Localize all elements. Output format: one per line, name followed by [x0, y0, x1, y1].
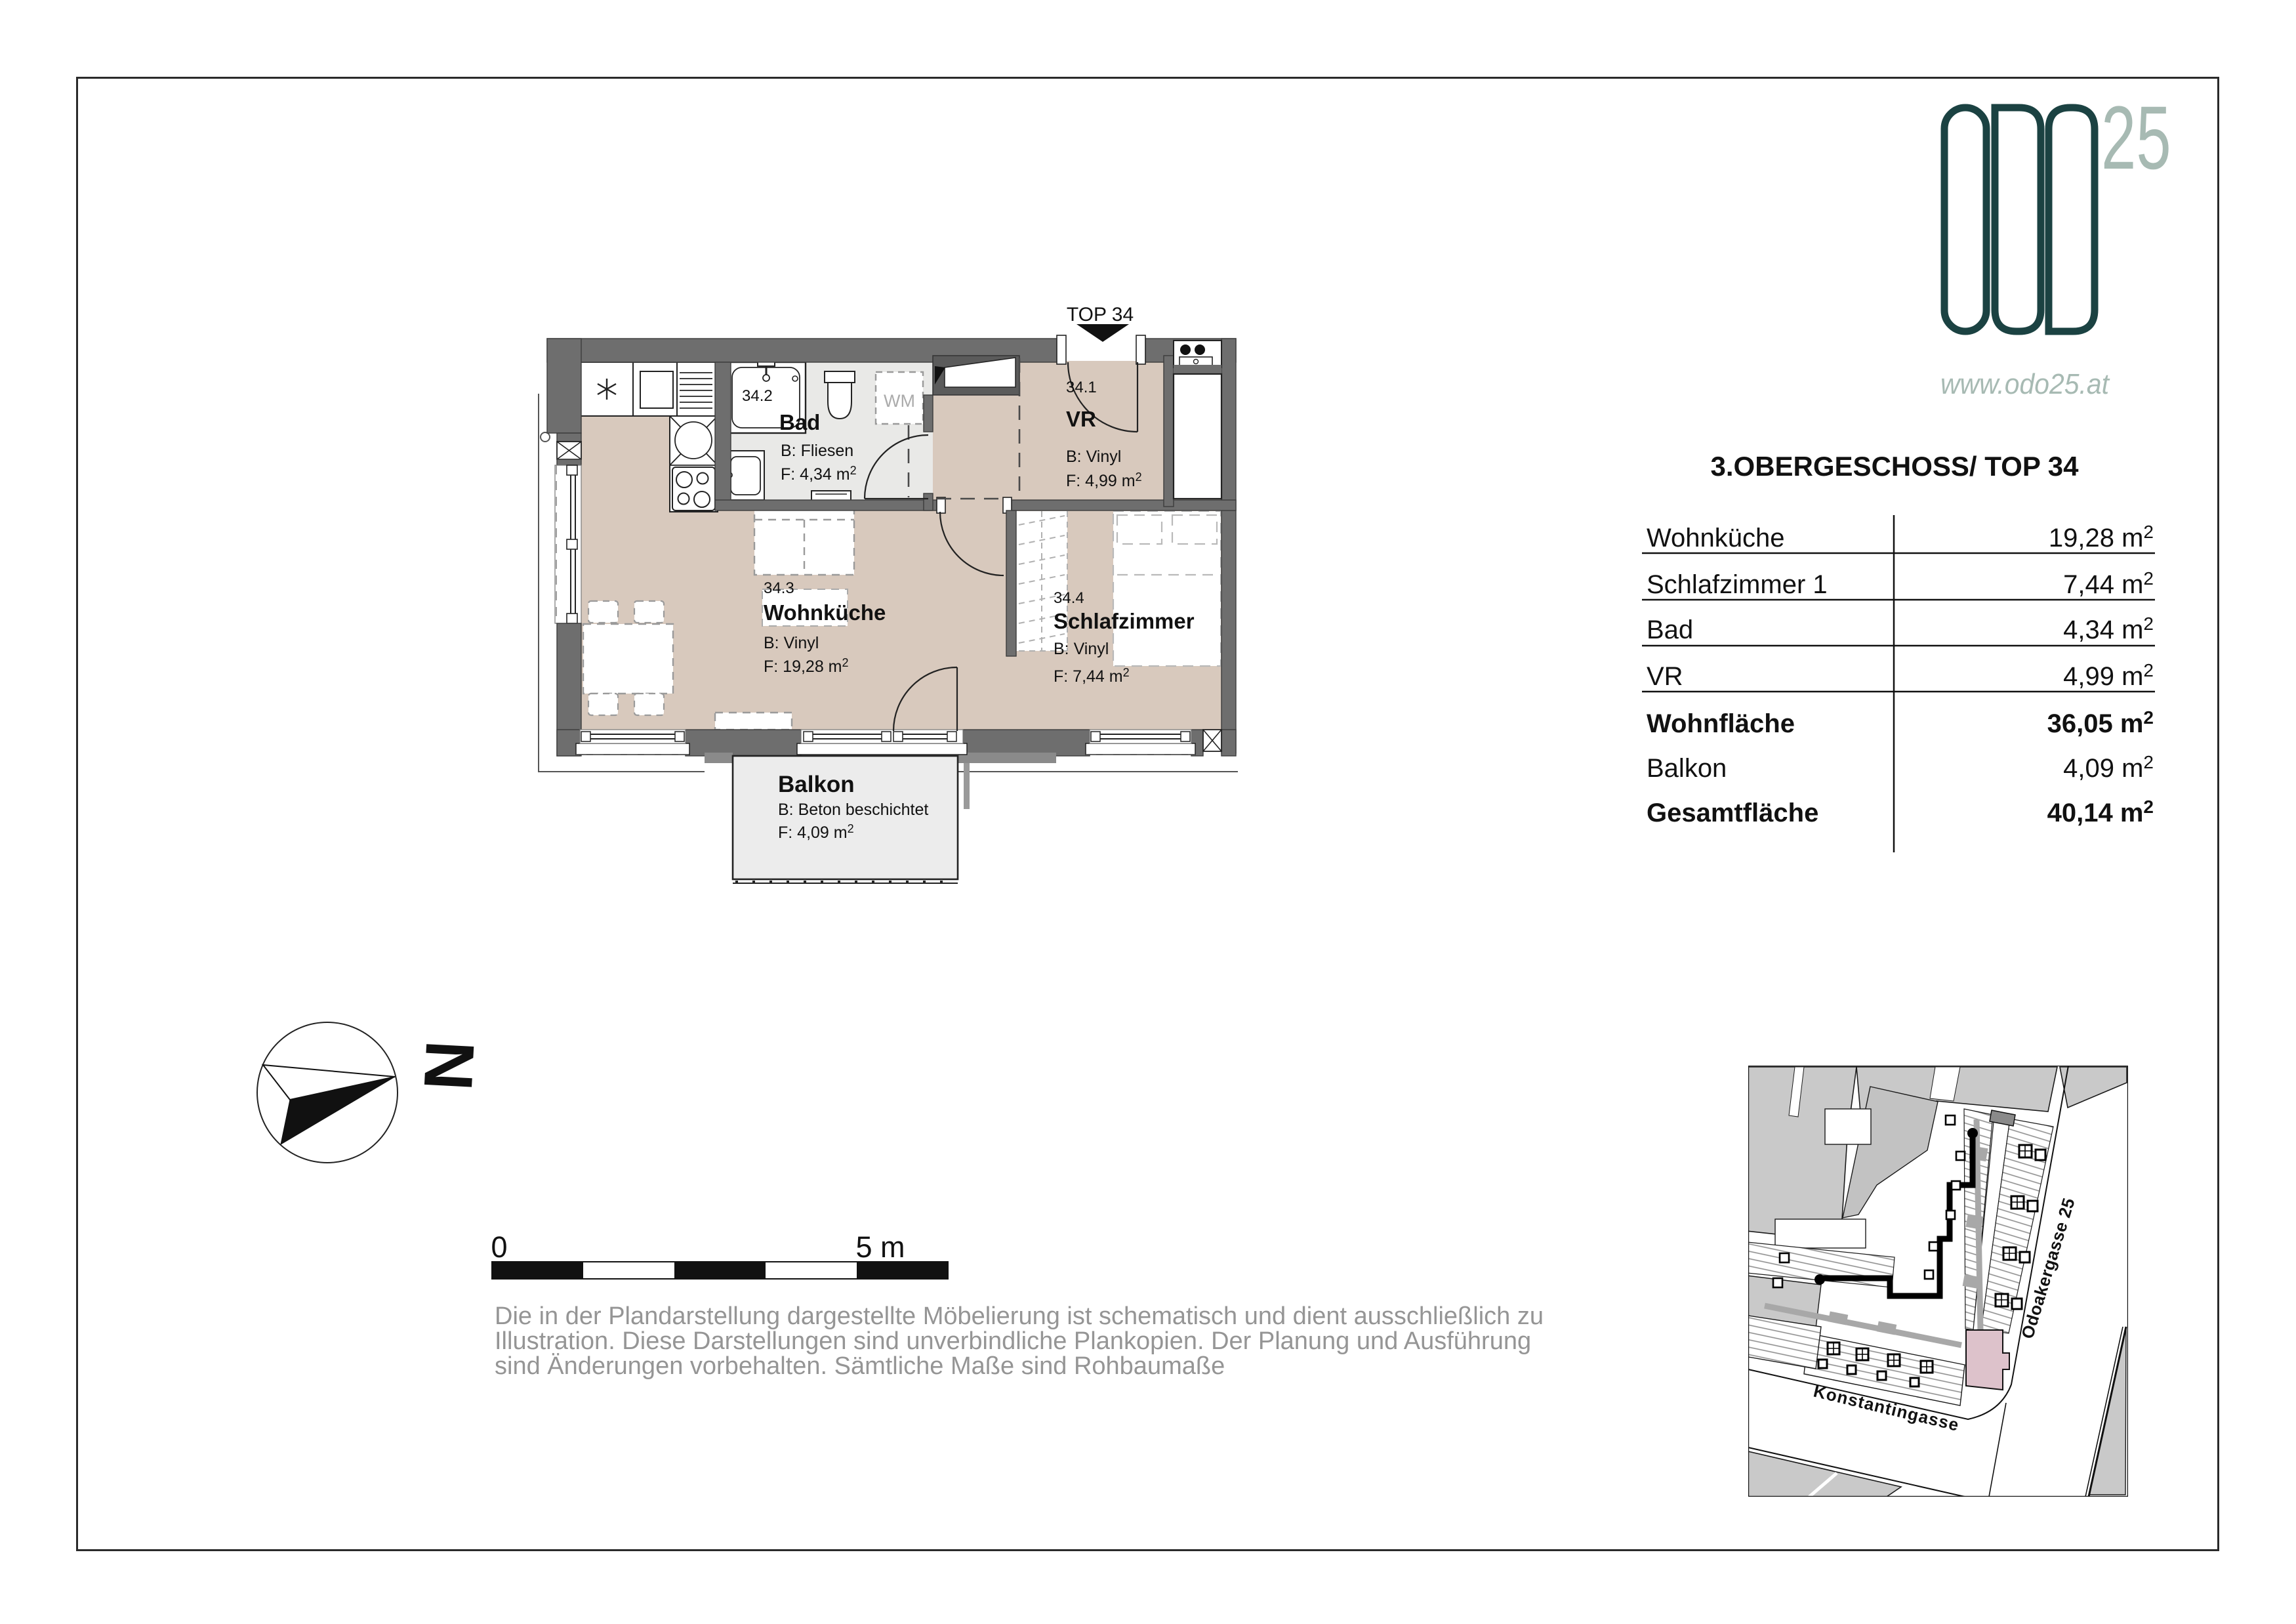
svg-text:VR: VR	[1066, 407, 1096, 431]
svg-text:Illustration. Diese Darstellun: Illustration. Diese Darstellungen sind u…	[495, 1327, 1531, 1355]
svg-text:Bad: Bad	[1647, 615, 1693, 644]
svg-text:VR: VR	[1647, 662, 1683, 691]
svg-text:Die in der Plandarstellung dar: Die in der Plandarstellung dargestellte …	[495, 1302, 1544, 1330]
svg-text:sind Änderungen vorbehalten. S: sind Änderungen vorbehalten. Sämtliche M…	[495, 1352, 1225, 1380]
svg-text:4,99 m2: 4,99 m2	[2063, 660, 2154, 691]
svg-text:F: 4,99 m2: F: 4,99 m2	[1066, 470, 1142, 490]
svg-text:B: Beton beschichtet: B: Beton beschichtet	[778, 801, 928, 819]
svg-text:WM: WM	[884, 391, 915, 411]
svg-text:www.odo25.at: www.odo25.at	[1940, 369, 2110, 401]
svg-text:34.2: 34.2	[742, 387, 773, 405]
svg-text:19,28 m2: 19,28 m2	[2049, 522, 2154, 552]
svg-text:B: Vinyl: B: Vinyl	[1054, 640, 1109, 658]
svg-text:0: 0	[491, 1230, 507, 1264]
svg-text:4,09 m2: 4,09 m2	[2063, 752, 2154, 783]
svg-text:F: 7,44 m2: F: 7,44 m2	[1054, 666, 1130, 686]
svg-text:Bad: Bad	[779, 410, 820, 434]
svg-text:TOP 34: TOP 34	[1067, 304, 1134, 325]
svg-text:40,14 m2: 40,14 m2	[2047, 797, 2154, 827]
svg-text:34.3: 34.3	[764, 579, 794, 597]
svg-text:34.4: 34.4	[1054, 589, 1084, 607]
svg-text:F: 19,28 m2: F: 19,28 m2	[764, 656, 849, 676]
svg-text:7,44 m2: 7,44 m2	[2063, 568, 2154, 599]
svg-text:F: 4,34 m2: F: 4,34 m2	[781, 464, 857, 484]
svg-text:Wohnfläche: Wohnfläche	[1647, 709, 1795, 738]
svg-text:B: Vinyl: B: Vinyl	[764, 634, 819, 652]
svg-text:3.OBERGESCHOSS/ TOP 34: 3.OBERGESCHOSS/ TOP 34	[1711, 451, 2080, 482]
svg-text:4,34 m2: 4,34 m2	[2063, 614, 2154, 644]
svg-text:B: Vinyl: B: Vinyl	[1066, 448, 1121, 466]
svg-text:Gesamtfläche: Gesamtfläche	[1647, 799, 1818, 827]
svg-text:Wohnküche: Wohnküche	[1647, 524, 1785, 552]
svg-text:5 m: 5 m	[855, 1230, 905, 1264]
svg-text:Schlafzimmer 1: Schlafzimmer 1	[1647, 570, 1828, 599]
svg-text:F: 4,09 m2: F: 4,09 m2	[778, 822, 854, 842]
svg-text:B: Fliesen: B: Fliesen	[781, 442, 853, 460]
svg-text:36,05 m2: 36,05 m2	[2047, 707, 2154, 738]
svg-text:Balkon: Balkon	[778, 772, 855, 797]
svg-text:Wohnküche: Wohnküche	[764, 600, 886, 625]
svg-text:34.1: 34.1	[1066, 379, 1097, 396]
svg-text:Schlafzimmer: Schlafzimmer	[1054, 609, 1195, 633]
svg-text:Balkon: Balkon	[1647, 754, 1727, 783]
svg-text:25: 25	[2101, 88, 2171, 188]
svg-text:N: N	[409, 1039, 489, 1093]
